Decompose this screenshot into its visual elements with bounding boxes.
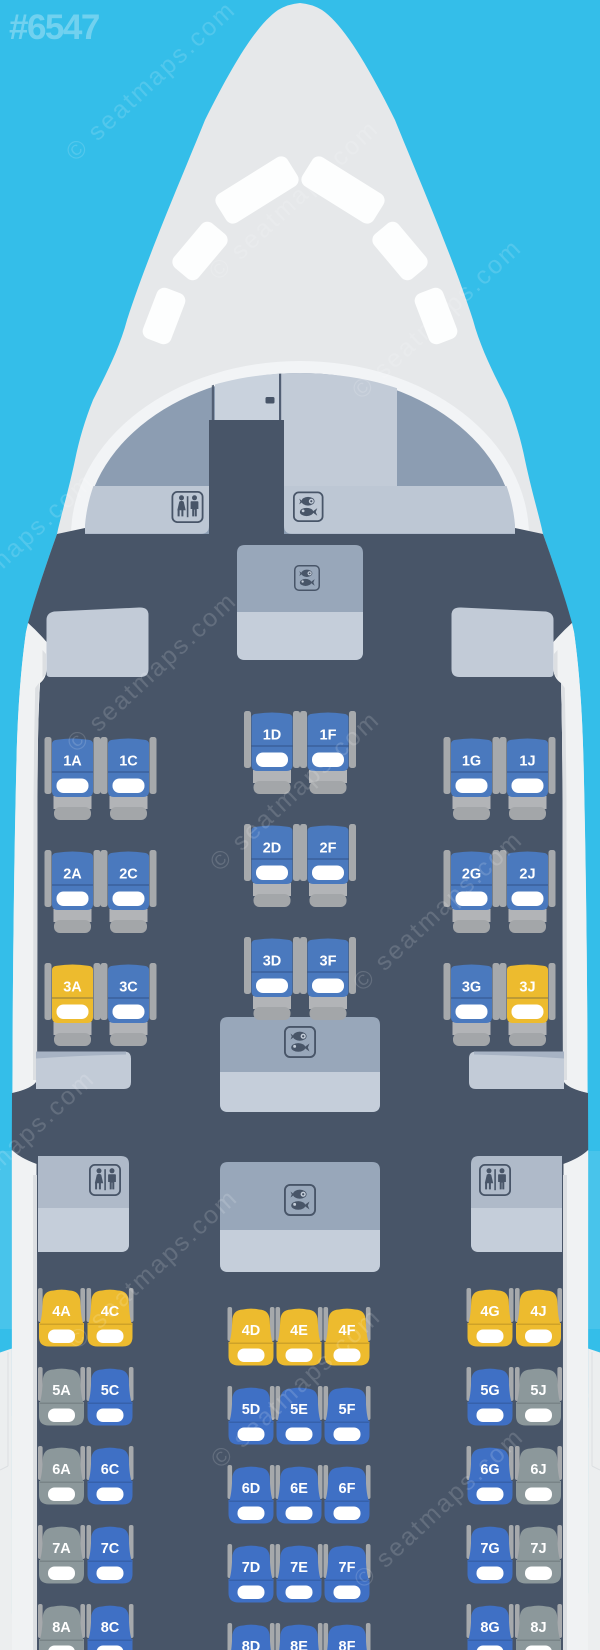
svg-text:3G: 3G (462, 980, 481, 996)
svg-text:1J: 1J (519, 754, 535, 770)
svg-text:7G: 7G (480, 1541, 499, 1557)
svg-text:1D: 1D (263, 728, 282, 744)
svg-text:6A: 6A (52, 1462, 71, 1478)
svg-text:6C: 6C (101, 1462, 120, 1478)
svg-text:3C: 3C (119, 980, 138, 996)
svg-text:6E: 6E (290, 1481, 308, 1497)
svg-text:8A: 8A (52, 1620, 71, 1636)
svg-text:8C: 8C (101, 1620, 120, 1636)
svg-text:#6547: #6547 (9, 8, 99, 47)
svg-text:2D: 2D (263, 841, 282, 857)
svg-text:1G: 1G (462, 754, 481, 770)
svg-text:4A: 4A (52, 1304, 71, 1320)
svg-text:5F: 5F (339, 1402, 356, 1418)
svg-text:3J: 3J (519, 980, 535, 996)
svg-text:5J: 5J (530, 1383, 546, 1399)
svg-text:5G: 5G (480, 1383, 499, 1399)
svg-text:4E: 4E (290, 1323, 308, 1339)
svg-text:8D: 8D (242, 1639, 261, 1650)
svg-text:7D: 7D (242, 1560, 261, 1576)
svg-text:4D: 4D (242, 1323, 261, 1339)
svg-text:7C: 7C (101, 1541, 120, 1557)
svg-text:6J: 6J (530, 1462, 546, 1478)
svg-text:2F: 2F (320, 841, 337, 857)
svg-text:1C: 1C (119, 754, 138, 770)
svg-text:7E: 7E (290, 1560, 308, 1576)
svg-text:3F: 3F (320, 954, 337, 970)
svg-text:8E: 8E (290, 1639, 308, 1650)
svg-text:3A: 3A (63, 980, 82, 996)
svg-text:8F: 8F (339, 1639, 356, 1650)
svg-text:6D: 6D (242, 1481, 261, 1497)
svg-text:3D: 3D (263, 954, 282, 970)
svg-text:5A: 5A (52, 1383, 71, 1399)
svg-text:2C: 2C (119, 867, 138, 883)
svg-text:2J: 2J (519, 867, 535, 883)
svg-text:4J: 4J (530, 1304, 546, 1320)
svg-text:7A: 7A (52, 1541, 71, 1557)
svg-text:4G: 4G (480, 1304, 499, 1320)
svg-text:2A: 2A (63, 867, 82, 883)
svg-text:8G: 8G (480, 1620, 499, 1636)
svg-text:6F: 6F (339, 1481, 356, 1497)
svg-text:5C: 5C (101, 1383, 120, 1399)
svg-text:8J: 8J (530, 1620, 546, 1636)
svg-text:7J: 7J (530, 1541, 546, 1557)
